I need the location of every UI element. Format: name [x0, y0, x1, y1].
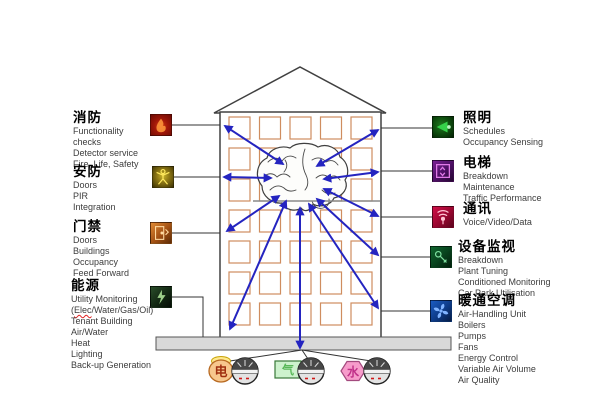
security-item: Doors: [73, 180, 116, 191]
access-item: Occupancy: [73, 257, 129, 268]
fire-item: Functionality: [73, 126, 139, 137]
equipment-title: 设备监视: [458, 239, 551, 255]
energy-item-utilities: (Elec/Water/Gas/Oil): [71, 305, 153, 316]
comms-icon: [432, 206, 454, 228]
fire-item: Detector service: [73, 148, 139, 159]
comms-item: Voice/Video/Data: [463, 217, 532, 228]
hvac-icon: [430, 300, 452, 322]
system-block-elevator: 电梯 Breakdown Maintenance Traffic Perform…: [463, 155, 542, 204]
hvac-item: Boilers: [458, 320, 536, 331]
security-item: Integration: [73, 202, 116, 213]
electricity-meter-label: 电: [214, 364, 227, 379]
energy-item: Utility Monitoring: [71, 294, 153, 305]
hvac-item: Energy Control: [458, 353, 536, 364]
elevator-title: 电梯: [463, 155, 542, 171]
electricity-gauge-icon: [232, 358, 258, 384]
water-gauge-icon: [364, 358, 390, 384]
energy-item: Heat: [71, 338, 153, 349]
energy-item: Lighting: [71, 349, 153, 360]
fire-icon: [150, 114, 172, 136]
misspelled-word: Elec: [74, 305, 92, 315]
fire-item: checks: [73, 137, 139, 148]
access-icon: [150, 222, 172, 244]
system-block-comms: 通讯 Voice/Video/Data: [463, 201, 532, 228]
energy-title: 能源: [71, 278, 153, 294]
hvac-item: Air-Handling Unit: [458, 309, 536, 320]
elevator-item: Breakdown: [463, 171, 542, 182]
water-meter: 水: [341, 358, 390, 384]
lighting-item: Schedules: [463, 126, 543, 137]
hvac-item: Variable Air Volume: [458, 364, 536, 375]
energy-item: Back-up Generation: [71, 360, 153, 371]
equipment-item: Breakdown: [458, 255, 551, 266]
lighting-title: 照明: [463, 110, 543, 126]
elevator-item: Maintenance: [463, 182, 542, 193]
energy-connector: [172, 297, 203, 337]
system-block-hvac: 暖通空调 Air-Handling Unit Boilers Pumps Fan…: [458, 293, 536, 386]
energy-icon: [150, 286, 172, 308]
system-block-security: 安防 Doors PIR Integration: [73, 164, 116, 213]
lighting-icon: [432, 116, 454, 138]
diagram-canvas: 电 气 水: [0, 0, 600, 400]
security-icon: [152, 166, 174, 188]
hvac-item: Pumps: [458, 331, 536, 342]
lighting-item: Occupancy Sensing: [463, 137, 543, 148]
equipment-item: Conditioned Monitoring: [458, 277, 551, 288]
gas-meter-label: 气: [281, 362, 294, 377]
utility-meters: 电 气 水: [209, 357, 390, 385]
access-item: Buildings: [73, 246, 129, 257]
elevator-icon: [432, 160, 454, 182]
equipment-icon: [430, 246, 452, 268]
building-roof: [214, 67, 386, 113]
ground-bar: [156, 337, 451, 350]
security-title: 安防: [73, 164, 116, 180]
security-item: PIR: [73, 191, 116, 202]
system-block-lighting: 照明 Schedules Occupancy Sensing: [463, 110, 543, 148]
hvac-item: Air Quality: [458, 375, 536, 386]
equipment-item: Plant Tuning: [458, 266, 551, 277]
system-block-access: 门禁 Doors Buildings Occupancy Feed Forwar…: [73, 219, 129, 279]
hvac-item: Fans: [458, 342, 536, 353]
fire-title: 消防: [73, 110, 139, 126]
energy-item: Tenant Building: [71, 316, 153, 327]
utilities-rest: /Water/Gas/Oil): [92, 305, 154, 315]
gas-meter-connector: [302, 350, 308, 359]
access-item: Doors: [73, 235, 129, 246]
water-meter-label: 水: [347, 364, 360, 379]
system-block-energy: 能源 Utility Monitoring (Elec/Water/Gas/Oi…: [71, 278, 153, 371]
system-block-equipment: 设备监视 Breakdown Plant Tuning Conditioned …: [458, 239, 551, 299]
gas-meter: 气: [275, 358, 324, 384]
hvac-title: 暖通空调: [458, 293, 536, 309]
comms-title: 通讯: [463, 201, 532, 217]
system-block-fire: 消防 Functionality checks Detector service…: [73, 110, 139, 170]
gas-gauge-icon: [298, 358, 324, 384]
arrow-security: [224, 177, 271, 178]
access-title: 门禁: [73, 219, 129, 235]
energy-item: Air/Water: [71, 327, 153, 338]
